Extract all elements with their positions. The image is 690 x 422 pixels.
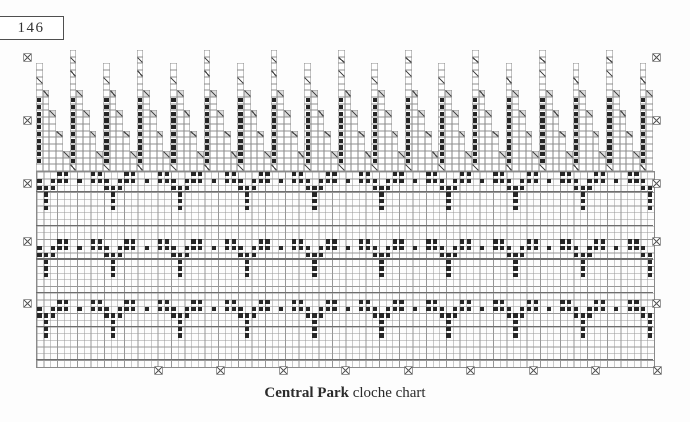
staircase-cell: [553, 144, 560, 151]
stitch-dot: [440, 179, 444, 183]
stitch-dot: [165, 172, 169, 176]
stitch-dot: [520, 246, 524, 250]
stitch-dot: [306, 253, 310, 257]
staircase-cell: [640, 84, 647, 91]
staircase-cell: [271, 110, 278, 117]
stitch-dot: [446, 320, 450, 324]
decrease-slash-cell: [231, 151, 238, 158]
stitch-dot: [460, 239, 464, 243]
x-box-marker-icon: [653, 180, 660, 187]
staircase-cell: [143, 104, 150, 111]
staircase-cell: [96, 164, 103, 171]
purl-dot: [574, 159, 578, 163]
staircase-cell: [452, 117, 459, 124]
staircase-cell: [284, 164, 291, 171]
staircase-cell: [70, 97, 77, 104]
staircase-cell: [345, 164, 352, 171]
purl-dot: [171, 145, 175, 149]
purl-dot: [104, 145, 108, 149]
staircase-cell: [573, 104, 580, 111]
staircase-cell: [573, 144, 580, 151]
stitch-dot: [581, 253, 585, 257]
stitch-dot: [581, 192, 585, 196]
staircase-cell: [224, 144, 231, 151]
staircase-cell: [284, 137, 291, 144]
purl-dot: [138, 98, 142, 102]
staircase-cell: [137, 110, 144, 117]
stitch-dot: [386, 186, 390, 190]
staircase-cell: [70, 77, 77, 84]
purl-dot: [406, 98, 410, 102]
decrease-slash-cell: [143, 90, 150, 97]
staircase-cell: [479, 124, 486, 131]
staircase-cell: [345, 151, 352, 158]
staircase-cell: [512, 158, 519, 165]
stitch-dot: [77, 246, 81, 250]
staircase-cell: [76, 137, 83, 144]
staircase-cell: [251, 124, 258, 131]
stitch-dot: [265, 300, 269, 304]
purl-dot: [104, 132, 108, 136]
stitch-dot: [493, 172, 497, 176]
staircase-cell: [318, 137, 325, 144]
purl-dot: [641, 105, 645, 109]
decrease-slash-cell: [204, 164, 211, 171]
purl-dot: [373, 98, 377, 102]
staircase-cell: [36, 158, 43, 165]
staircase-cell: [392, 164, 399, 171]
staircase-cell: [291, 158, 298, 165]
staircase-cell: [311, 117, 318, 124]
staircase-cell: [445, 151, 452, 158]
staircase-cell: [385, 124, 392, 131]
staircase-cell: [237, 144, 244, 151]
stitch-dot: [44, 199, 48, 203]
stitch-dot: [77, 307, 81, 311]
staircase-cell: [472, 144, 479, 151]
stitch-dot: [413, 179, 417, 183]
staircase-cell: [573, 124, 580, 131]
staircase-cell: [546, 151, 553, 158]
stitch-dot: [319, 307, 323, 311]
decrease-slash-cell: [150, 110, 157, 117]
staircase-cell: [170, 63, 177, 70]
stitch-dot: [379, 266, 383, 270]
stitch-dot: [252, 307, 256, 311]
staircase-cell: [338, 151, 345, 158]
staircase-cell: [452, 158, 459, 165]
stitch-dot: [171, 186, 175, 190]
purl-dot: [104, 159, 108, 163]
stitch-dot: [527, 239, 531, 243]
stitch-dot: [513, 253, 517, 257]
staircase-cell: [264, 158, 271, 165]
decrease-slash-cell: [123, 131, 130, 138]
staircase-cell: [103, 110, 110, 117]
purl-dot: [507, 132, 511, 136]
stitch-dot: [413, 307, 417, 311]
staircase-cell: [573, 117, 580, 124]
purl-dot: [37, 98, 41, 102]
staircase-cell: [257, 144, 264, 151]
stitch-dot: [118, 307, 122, 311]
stitch-dot: [64, 246, 68, 250]
decrease-slash-cell: [304, 164, 311, 171]
staircase-cell: [479, 131, 486, 138]
stitch-dot: [111, 327, 115, 331]
staircase-cell: [425, 158, 432, 165]
stitch-dot: [399, 172, 403, 176]
staircase-cell: [130, 164, 137, 171]
purl-dot: [205, 98, 209, 102]
stitch-dot: [547, 246, 551, 250]
stitch-dot: [191, 179, 195, 183]
staircase-cell: [143, 158, 150, 165]
stitch-dot: [104, 313, 108, 317]
stitch-dot: [386, 246, 390, 250]
staircase-cell: [143, 117, 150, 124]
stitch-dot: [393, 239, 397, 243]
staircase-cell: [204, 124, 211, 131]
stitch-dot: [433, 172, 437, 176]
stitch-dot: [178, 199, 182, 203]
decrease-slash-cell: [485, 110, 492, 117]
staircase-cell: [566, 158, 573, 165]
staircase-cell: [485, 164, 492, 171]
purl-dot: [507, 145, 511, 149]
x-box-marker-icon: [24, 117, 31, 124]
stitch-dot: [359, 300, 363, 304]
decrease-slash-cell: [479, 90, 486, 97]
staircase-cell: [251, 151, 258, 158]
stitch-dot: [628, 172, 632, 176]
staircase-cell: [405, 90, 412, 97]
stitch-dot: [232, 179, 236, 183]
staircase-cell: [217, 131, 224, 138]
stitch-dot: [641, 246, 645, 250]
staircase-cell: [43, 158, 50, 165]
staircase-cell: [405, 84, 412, 91]
decrease-slash-cell: [425, 131, 432, 138]
stitch-dot: [560, 172, 564, 176]
purl-dot: [540, 159, 544, 163]
purl-dot: [473, 118, 477, 122]
staircase-cell: [70, 50, 77, 57]
staircase-cell: [83, 124, 90, 131]
staircase-cell: [385, 144, 392, 151]
staircase-cell: [492, 158, 499, 165]
staircase-cell: [110, 144, 117, 151]
staircase-cell: [566, 164, 573, 171]
staircase-cell: [640, 144, 647, 151]
staircase-cell: [116, 151, 123, 158]
staircase-cell: [640, 90, 647, 97]
staircase-cell: [499, 158, 506, 165]
stitch-dot: [312, 327, 316, 331]
stitch-dot: [587, 246, 591, 250]
stitch-dot: [265, 172, 269, 176]
staircase-cell: [311, 97, 318, 104]
stitch-dot: [399, 179, 403, 183]
staircase-cell: [405, 131, 412, 138]
staircase-cell: [311, 110, 318, 117]
staircase-cell: [210, 151, 217, 158]
decrease-slash-cell: [197, 151, 204, 158]
staircase-cell: [371, 144, 378, 151]
staircase-cell: [345, 124, 352, 131]
stitch-dot: [641, 307, 645, 311]
staircase-cell: [485, 131, 492, 138]
stitch-dot: [225, 307, 229, 311]
stitch-dot: [232, 172, 236, 176]
staircase-cell: [338, 50, 345, 57]
staircase-cell: [526, 158, 533, 165]
decrease-slash-cell: [358, 131, 365, 138]
staircase-cell: [338, 131, 345, 138]
staircase-cell: [143, 124, 150, 131]
staircase-cell: [613, 158, 620, 165]
staircase-cell: [304, 90, 311, 97]
stitch-dot: [131, 246, 135, 250]
stitch-dot: [245, 313, 249, 317]
staircase-cell: [96, 158, 103, 165]
staircase-cell: [331, 164, 338, 171]
stitch-dot: [198, 172, 202, 176]
stitch-dot: [259, 307, 263, 311]
staircase-cell: [284, 151, 291, 158]
staircase-cell: [197, 164, 204, 171]
stitch-dot: [567, 179, 571, 183]
stitch-dot: [299, 179, 303, 183]
staircase-cell: [277, 131, 284, 138]
stitch-dot: [567, 246, 571, 250]
stitch-dot: [312, 206, 316, 210]
purl-dot: [440, 118, 444, 122]
purl-dot: [373, 125, 377, 129]
staircase-cell: [224, 151, 231, 158]
staircase-cell: [405, 158, 412, 165]
staircase-cell: [532, 164, 539, 171]
staircase-cell: [472, 97, 479, 104]
stitch-dot: [259, 246, 263, 250]
staircase-cell: [324, 164, 331, 171]
stitch-dot: [158, 172, 162, 176]
chart-caption: Central Park cloche chart: [0, 385, 690, 402]
stitch-dot: [433, 246, 437, 250]
staircase-cell: [244, 158, 251, 165]
staircase-cell: [291, 151, 298, 158]
staircase-cell: [304, 63, 311, 70]
staircase-cell: [579, 117, 586, 124]
stitch-dot: [104, 179, 108, 183]
stitch-dot: [366, 172, 370, 176]
stitch-dot: [379, 313, 383, 317]
staircase-cell: [371, 84, 378, 91]
staircase-cell: [606, 63, 613, 70]
staircase-cell: [170, 131, 177, 138]
staircase-cell: [271, 117, 278, 124]
stitch-dot: [185, 307, 189, 311]
purl-dot: [272, 132, 276, 136]
staircase-cell: [606, 131, 613, 138]
staircase-cell: [237, 110, 244, 117]
staircase-cell: [204, 158, 211, 165]
staircase-cell: [318, 144, 325, 151]
stitch-dot: [513, 192, 517, 196]
stitch-dot: [37, 179, 41, 183]
staircase-cell: [304, 131, 311, 138]
purl-dot: [238, 125, 242, 129]
stitch-dot: [446, 333, 450, 337]
purl-dot: [37, 112, 41, 116]
decrease-slash-cell: [331, 151, 338, 158]
stitch-dot: [594, 172, 598, 176]
staircase-cell: [338, 84, 345, 91]
staircase-cell: [170, 117, 177, 124]
stitch-dot: [145, 307, 149, 311]
staircase-cell: [123, 158, 130, 165]
staircase-cell: [237, 131, 244, 138]
purl-dot: [540, 105, 544, 109]
x-box-marker-icon: [654, 367, 661, 374]
stitch-dot: [628, 307, 632, 311]
staircase-cell: [405, 117, 412, 124]
book-page: 146 Central Park cloche chart: [0, 0, 690, 422]
purl-dot: [574, 139, 578, 143]
staircase-cell: [291, 164, 298, 171]
staircase-cell: [365, 164, 372, 171]
staircase-cell: [110, 110, 117, 117]
decrease-slash-cell: [190, 131, 197, 138]
staircase-cell: [412, 144, 419, 151]
stitch-dot: [158, 307, 162, 311]
purl-dot: [306, 132, 310, 136]
purl-dot: [540, 98, 544, 102]
staircase-cell: [244, 131, 251, 138]
purl-dot: [339, 98, 343, 102]
staircase-cell: [506, 63, 513, 70]
purl-dot: [306, 159, 310, 163]
staircase-cell: [438, 144, 445, 151]
decrease-slash-cell: [573, 164, 580, 171]
staircase-cell: [512, 97, 519, 104]
x-box-marker-icon: [530, 367, 537, 374]
stitch-dot: [64, 239, 68, 243]
staircase-cell: [606, 84, 613, 91]
stitch-dot: [299, 172, 303, 176]
purl-dot: [138, 159, 142, 163]
stitch-dot: [259, 300, 263, 304]
staircase-cell: [385, 131, 392, 138]
stitch-dot: [480, 179, 484, 183]
staircase-cell: [620, 124, 627, 131]
decrease-slash-cell: [130, 151, 137, 158]
stitch-dot: [648, 206, 652, 210]
purl-dot: [104, 139, 108, 143]
decrease-slash-cell: [378, 90, 385, 97]
purl-dot: [339, 132, 343, 136]
staircase-cell: [445, 104, 452, 111]
purl-dot: [37, 152, 41, 156]
staircase-cell: [311, 151, 318, 158]
staircase-cell: [646, 137, 653, 144]
purl-dot: [138, 112, 142, 116]
decrease-slash-cell: [237, 77, 244, 84]
staircase-cell: [573, 70, 580, 77]
grid-bold-line: [36, 359, 653, 360]
staircase-cell: [304, 151, 311, 158]
staircase-cell: [586, 151, 593, 158]
purl-dot: [306, 118, 310, 122]
purl-dot: [104, 98, 108, 102]
purl-dot: [641, 98, 645, 102]
staircase-cell: [512, 117, 519, 124]
purl-dot: [339, 139, 343, 143]
staircase-cell: [36, 144, 43, 151]
purl-dot: [205, 105, 209, 109]
staircase-cell: [184, 131, 191, 138]
staircase-cell: [613, 124, 620, 131]
stitch-dot: [587, 186, 591, 190]
staircase-cell: [579, 131, 586, 138]
staircase-cell: [378, 104, 385, 111]
stitch-dot: [178, 327, 182, 331]
stitch-dot: [493, 246, 497, 250]
stitch-dot: [312, 192, 316, 196]
staircase-cell: [251, 131, 258, 138]
staircase-cell: [646, 151, 653, 158]
staircase-cell: [506, 131, 513, 138]
staircase-cell: [137, 137, 144, 144]
stitch-dot: [158, 239, 162, 243]
stitch-dot: [145, 179, 149, 183]
stitch-dot: [379, 199, 383, 203]
stitch-dot: [51, 307, 55, 311]
staircase-cell: [116, 144, 123, 151]
purl-dot: [272, 152, 276, 156]
stitch-dot: [37, 307, 41, 311]
purl-dot: [37, 125, 41, 129]
staircase-cell: [573, 158, 580, 165]
cloche-chart: [0, 0, 690, 422]
staircase-cell: [43, 131, 50, 138]
staircase-cell: [43, 137, 50, 144]
purl-dot: [607, 132, 611, 136]
purl-dot: [440, 98, 444, 102]
staircase-cell: [190, 144, 197, 151]
decrease-slash-cell: [398, 151, 405, 158]
stitch-dot: [628, 246, 632, 250]
stitch-dot: [64, 172, 68, 176]
staircase-cell: [338, 144, 345, 151]
stitch-dot: [634, 172, 638, 176]
staircase-cell: [378, 144, 385, 151]
staircase-cell: [512, 110, 519, 117]
staircase-cell: [573, 110, 580, 117]
stitch-dot: [634, 300, 638, 304]
staircase-cell: [271, 90, 278, 97]
staircase-cell: [157, 151, 164, 158]
caption-subtitle: cloche chart: [349, 385, 426, 401]
staircase-cell: [358, 137, 365, 144]
staircase-cell: [606, 144, 613, 151]
purl-dot: [373, 118, 377, 122]
purl-dot: [607, 125, 611, 129]
staircase-cell: [472, 63, 479, 70]
decrease-slash-cell: [345, 90, 352, 97]
staircase-cell: [184, 144, 191, 151]
x-box-marker-icon: [24, 300, 31, 307]
